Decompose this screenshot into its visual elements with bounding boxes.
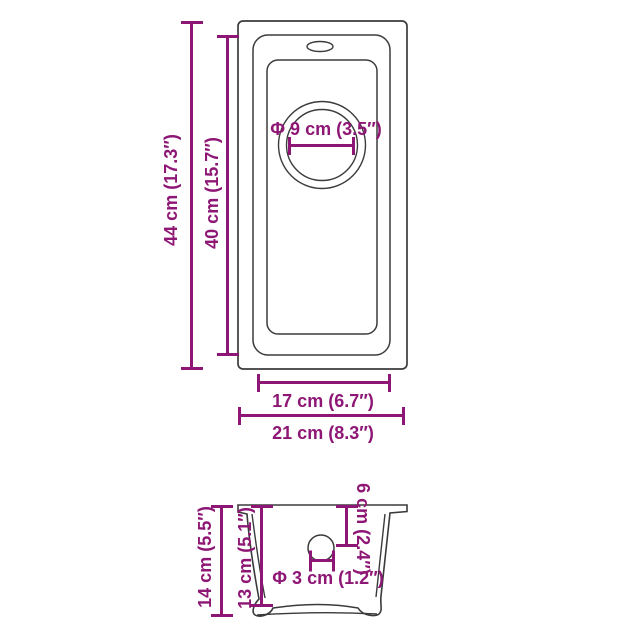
sink-line-drawing — [0, 0, 640, 640]
dim-label-bowl-width: 17 cm (6.7″) — [263, 390, 383, 412]
dim-label-overall-width: 21 cm (8.3″) — [263, 422, 383, 444]
dim-line-bowl-depth — [260, 505, 263, 607]
dim-label-drain-hole-diameter: Φ 3 cm (1.2″) — [268, 567, 388, 589]
dim-label-overall-length: 44 cm (17.3″) — [160, 130, 182, 250]
top-view-outer-edge — [238, 21, 407, 369]
side-view-base-bottom-line — [257, 613, 377, 615]
dim-line-overall-width — [238, 414, 405, 417]
top-view — [238, 21, 407, 369]
top-view-rim — [253, 35, 390, 355]
overflow-hole — [307, 42, 333, 52]
dim-line-drain-center-offset — [345, 505, 348, 547]
dim-label-overall-height: 14 cm (5.5″) — [194, 497, 216, 617]
product-dimension-diagram: 44 cm (17.3″) 40 cm (15.7″) Φ 9 cm (3.5″… — [0, 0, 640, 640]
dim-line-overall-height — [220, 505, 223, 617]
dim-line-bowl-length — [226, 35, 229, 356]
dim-line-drain-diameter — [288, 144, 355, 147]
dim-line-bowl-width — [257, 381, 391, 384]
dim-label-drain-diameter: Φ 9 cm (3.5″) — [266, 118, 386, 140]
dim-label-bowl-depth: 13 cm (5.1″) — [234, 498, 256, 618]
dim-line-drain-hole-diameter — [309, 559, 335, 562]
dim-label-bowl-length: 40 cm (15.7″) — [201, 133, 223, 253]
dim-line-overall-length — [190, 21, 193, 370]
